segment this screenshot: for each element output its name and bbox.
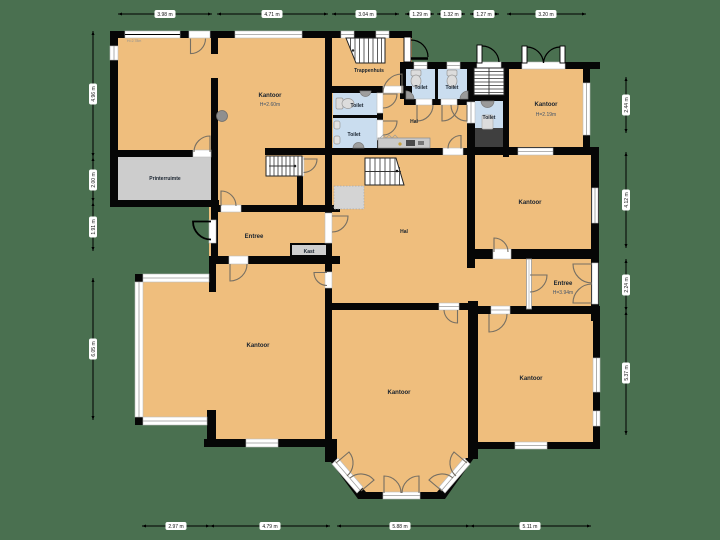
svg-text:5.37 m: 5.37 m (624, 365, 630, 380)
svg-text:6.05 m: 6.05 m (91, 341, 97, 356)
svg-text:1.91 m: 1.91 m (91, 219, 97, 234)
svg-text:3.20 m: 3.20 m (538, 12, 553, 18)
svg-text:H=2.19m: H=2.19m (536, 112, 556, 118)
svg-text:3.98 m: 3.98 m (157, 12, 172, 18)
svg-text:Kantoor: Kantoor (388, 390, 412, 396)
svg-text:Kantoor: Kantoor (535, 102, 559, 108)
svg-text:Toilet: Toilet (483, 115, 496, 121)
svg-text:Hal: Hal (410, 119, 418, 125)
svg-text:Printerruimte: Printerruimte (149, 176, 181, 182)
svg-text:3.04 m: 3.04 m (358, 12, 373, 18)
svg-text:4.96 m: 4.96 m (91, 86, 97, 101)
svg-text:2.00 m: 2.00 m (91, 172, 97, 187)
svg-text:2.97 m: 2.97 m (168, 524, 183, 530)
svg-text:Toilet: Toilet (348, 132, 361, 138)
svg-text:2.44 m: 2.44 m (624, 97, 630, 112)
svg-text:Toilet: Toilet (351, 103, 364, 109)
svg-text:4.79 m: 4.79 m (262, 524, 277, 530)
svg-text:Hal: Hal (400, 229, 408, 235)
svg-text:Kantoor: Kantoor (520, 376, 544, 382)
svg-text:Entree: Entree (554, 281, 573, 287)
svg-text:Toilet: Toilet (415, 85, 428, 91)
svg-text:Kantoor: Kantoor (259, 93, 283, 99)
svg-text:Kast: Kast (304, 249, 315, 255)
svg-text:4.71 m: 4.71 m (264, 12, 279, 18)
svg-text:4.12 m: 4.12 m (624, 192, 630, 207)
svg-text:Kantoor: Kantoor (247, 343, 271, 349)
svg-text:H=2.60m: H=2.60m (260, 102, 280, 108)
svg-text:1.27 m: 1.27 m (476, 12, 491, 18)
svg-text:Kantoor: Kantoor (519, 200, 543, 206)
svg-text:1.32 m: 1.32 m (443, 12, 458, 18)
svg-text:Trappenhuis: Trappenhuis (354, 68, 384, 74)
svg-text:Entree: Entree (245, 234, 264, 240)
svg-text:1.29 m: 1.29 m (412, 12, 427, 18)
svg-text:5.88 m: 5.88 m (392, 524, 407, 530)
svg-text:H=2.78m: H=2.78m (127, 39, 141, 43)
svg-text:5.11 m: 5.11 m (523, 524, 538, 530)
svg-text:Toilet: Toilet (446, 85, 459, 91)
svg-text:H=3.94m: H=3.94m (553, 290, 573, 296)
svg-text:2.24 m: 2.24 m (624, 277, 630, 292)
